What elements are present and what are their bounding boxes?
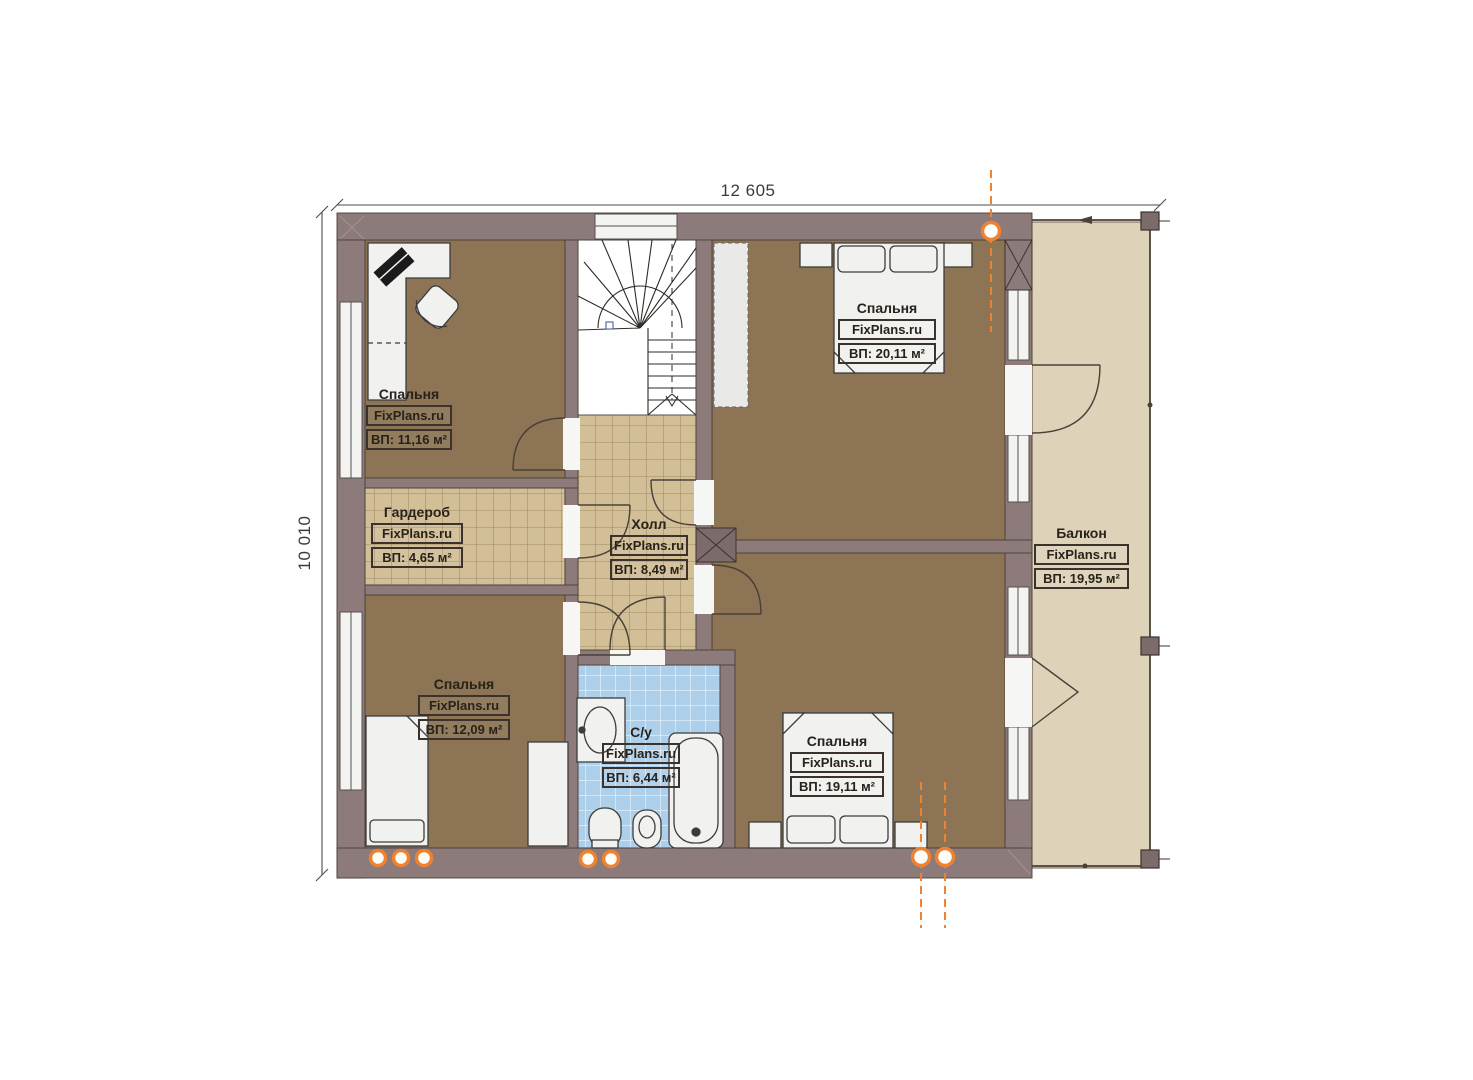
window-balcony-3 <box>1008 587 1029 655</box>
room-label-hall: Холл FixPlans.ru ВП: 8,49 м² <box>610 516 688 580</box>
room-label-bedroom-bottom-right: Спальня FixPlans.ru ВП: 19,11 м² <box>790 733 884 797</box>
room-name: Спальня <box>366 386 452 402</box>
downlight-icon <box>604 852 619 867</box>
room-brand-watermark: FixPlans.ru <box>366 405 452 426</box>
wall-wardrobe-bedroomBL <box>365 585 578 595</box>
room-name: Балкон <box>1034 525 1129 541</box>
room-area: ВП: 8,49 м² <box>610 559 688 580</box>
window-balcony-1 <box>1008 287 1029 360</box>
window-balcony-2 <box>1008 435 1029 502</box>
room-label-bedroom-top-right: Спальня FixPlans.ru ВП: 20,11 м² <box>838 300 936 364</box>
pillow-icon <box>370 820 424 842</box>
room-name: Гардероб <box>371 504 463 520</box>
room-area: ВП: 19,11 м² <box>790 776 884 797</box>
room-name: С/у <box>602 724 680 740</box>
downlight-icon <box>371 851 386 866</box>
wall-right-bedrooms-divider <box>712 540 1032 553</box>
downlight-icon <box>394 851 409 866</box>
room-name: Холл <box>610 516 688 532</box>
duct-column <box>696 528 736 562</box>
wall-bedroomTL-wardrobe <box>365 478 578 488</box>
room-area: ВП: 12,09 м² <box>418 719 510 740</box>
room-brand-watermark: FixPlans.ru <box>838 319 936 340</box>
room-area: ВП: 20,11 м² <box>838 343 936 364</box>
room-brand-watermark: FixPlans.ru <box>610 535 688 556</box>
nightstand-icon <box>895 822 927 848</box>
section-marker-icon <box>983 223 1000 240</box>
wall-top <box>337 213 1032 240</box>
pillow-icon <box>838 246 885 272</box>
room-brand-watermark: FixPlans.ru <box>418 695 510 716</box>
bidet-icon <box>633 810 661 848</box>
room-label-balcony: Балкон FixPlans.ru ВП: 19,95 м² <box>1034 525 1129 589</box>
downlight-icon <box>417 851 432 866</box>
nightstand-icon <box>800 243 832 267</box>
pillow-icon <box>787 816 835 843</box>
window-left-top <box>340 302 362 478</box>
room-label-bedroom-bottom-left: Спальня FixPlans.ru ВП: 12,09 м² <box>418 676 510 740</box>
room-brand-watermark: FixPlans.ru <box>790 752 884 773</box>
nightstand-icon <box>940 243 972 267</box>
room-name: Спальня <box>790 733 884 749</box>
toilet-icon <box>589 808 621 848</box>
room-name: Спальня <box>838 300 936 316</box>
floor-staircase <box>578 240 696 415</box>
window-top-stairs <box>595 214 677 239</box>
room-area: ВП: 11,16 м² <box>366 429 452 450</box>
floor-plan-canvas: 12 605 10 010 Спальня FixPlans.ru ВП: 11… <box>0 0 1473 1080</box>
room-brand-watermark: FixPlans.ru <box>371 523 463 544</box>
section-marker-icon <box>913 849 930 866</box>
room-brand-watermark: FixPlans.ru <box>602 743 680 764</box>
window-left-bottom <box>340 612 362 790</box>
room-label-bedroom-top-left: Спальня FixPlans.ru ВП: 11,16 м² <box>366 386 452 450</box>
balcony-wall-column <box>1005 240 1032 290</box>
dresser-icon <box>528 742 568 846</box>
closet-beside-stairs <box>714 243 748 407</box>
room-area: ВП: 4,65 м² <box>371 547 463 568</box>
section-marker-icon <box>937 849 954 866</box>
room-area: ВП: 19,95 м² <box>1034 568 1129 589</box>
room-label-wardrobe: Гардероб FixPlans.ru ВП: 4,65 м² <box>371 504 463 568</box>
room-area: ВП: 6,44 м² <box>602 767 680 788</box>
window-balcony-4 <box>1008 727 1029 800</box>
pillow-icon <box>840 816 888 843</box>
floor-plan-drawing <box>0 0 1473 1080</box>
room-label-bathroom: С/у FixPlans.ru ВП: 6,44 м² <box>602 724 680 788</box>
room-brand-watermark: FixPlans.ru <box>1034 544 1129 565</box>
nightstand-icon <box>749 822 781 848</box>
pillow-icon <box>890 246 937 272</box>
downlight-icon <box>581 852 596 867</box>
stairs-level-marker <box>606 322 613 329</box>
dimension-width-label: 12 605 <box>688 181 808 201</box>
dimension-height-label: 10 010 <box>295 483 315 603</box>
room-name: Спальня <box>418 676 510 692</box>
